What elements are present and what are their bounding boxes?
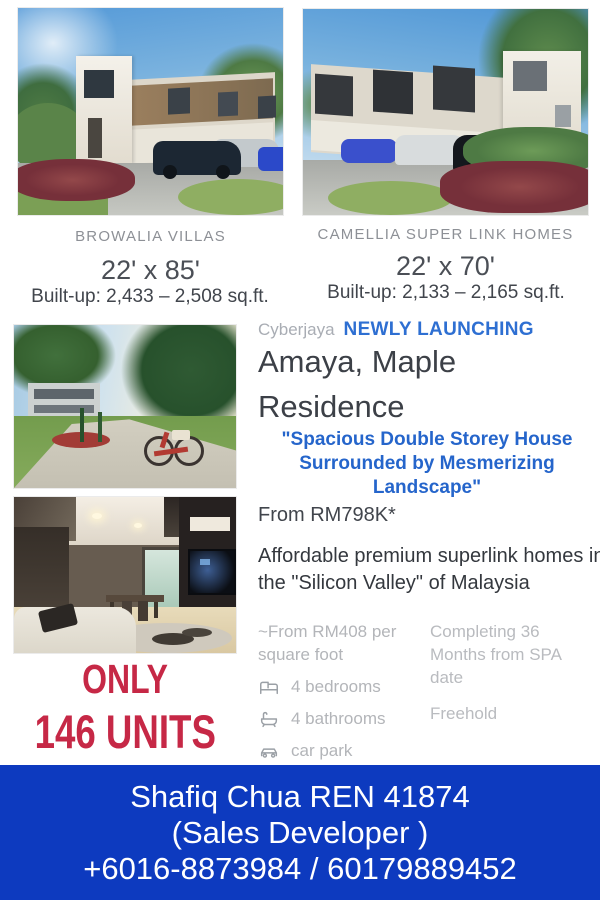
price-from: From RM798K* — [258, 504, 396, 527]
camellia-homes-photo — [303, 9, 588, 215]
browalia-dimensions: 22' x 85' — [18, 255, 283, 286]
camellia-caption: CAMELLIA SUPER LINK HOMES — [303, 226, 588, 243]
property-flyer: BROWALIA VILLAS CAMELLIA SUPER LINK HOME… — [0, 0, 600, 900]
browalia-villas-photo — [18, 8, 283, 215]
agent-role: (Sales Developer ) — [0, 815, 600, 851]
units-headline-count: 146 UNITS — [0, 704, 250, 759]
landscape-park-photo — [14, 325, 236, 488]
browalia-builtup: Built-up: 2,433 – 2,508 sq.ft. — [10, 286, 290, 308]
agent-contact-banner: Shafiq Chua REN 41874 (Sales Developer )… — [0, 765, 600, 900]
bath-icon — [258, 708, 280, 730]
camellia-dimensions: 22' x 70' — [303, 251, 588, 282]
feature-label: 4 bedrooms — [291, 675, 381, 698]
price-per-sqft: ~From RM408 per square foot — [258, 620, 426, 666]
feature-carpark: car park — [258, 739, 426, 762]
bed-icon — [258, 676, 280, 698]
browalia-caption: BROWALIA VILLAS — [18, 228, 283, 245]
tenure-label: Freehold — [430, 702, 592, 725]
details-right-column: Completing 36 Months from SPA date Freeh… — [430, 620, 592, 725]
units-headline-only: ONLY — [0, 656, 250, 703]
details-left-column: ~From RM408 per square foot 4 bedrooms 4… — [258, 620, 426, 762]
feature-label: 4 bathrooms — [291, 707, 386, 730]
location-label: Cyberjaya — [258, 320, 335, 339]
project-title-line1: Amaya, Maple — [258, 344, 456, 380]
newly-launching-tag: NEWLY LAUNCHING — [344, 319, 534, 340]
marketing-quote: "Spacious Double Storey House Surrounded… — [260, 428, 594, 500]
feature-bedrooms: 4 bedrooms — [258, 675, 426, 698]
completion-note: Completing 36 Months from SPA date — [430, 620, 592, 689]
car-icon — [258, 740, 280, 762]
agent-name: Shafiq Chua REN 41874 — [0, 779, 600, 815]
interior-living-photo — [14, 497, 236, 653]
project-title-line2: Residence — [258, 389, 404, 425]
feature-bathrooms: 4 bathrooms — [258, 707, 426, 730]
feature-label: car park — [291, 739, 352, 762]
agent-phones: +6016-8873984 / 60179889452 — [0, 851, 600, 887]
project-description: Affordable premium superlink homes in th… — [258, 543, 600, 597]
launch-row: CyberjayaNEWLY LAUNCHING — [258, 319, 534, 341]
camellia-builtup: Built-up: 2,133 – 2,165 sq.ft. — [300, 282, 592, 304]
